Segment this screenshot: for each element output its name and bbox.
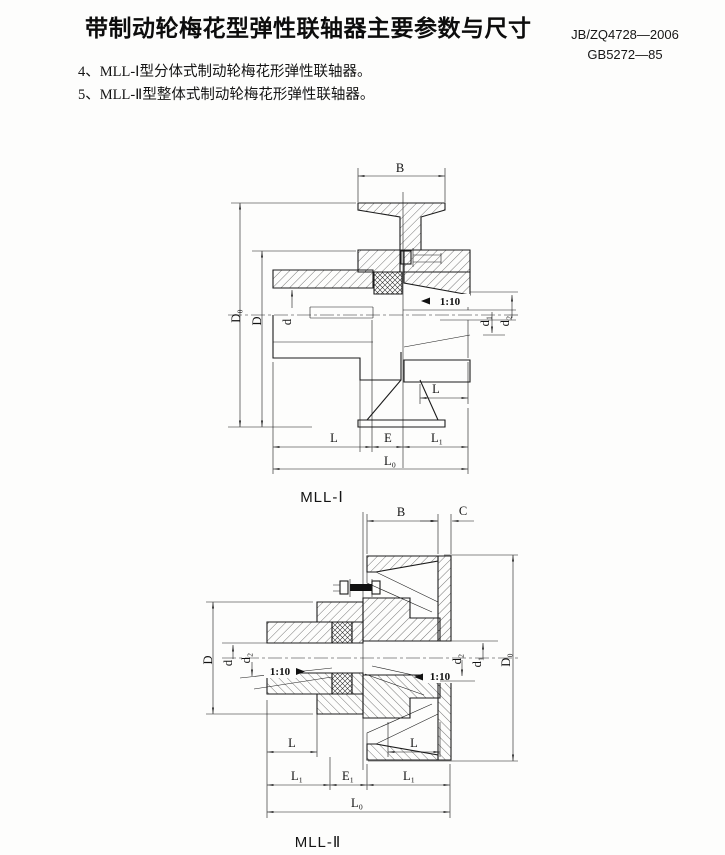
taper-annotation-fig1: 1:10 — [421, 294, 470, 308]
section-top-half-fig1 — [273, 203, 518, 358]
standard-codes: JB/ZQ4728—2006 GB5272—85 — [560, 25, 690, 64]
dim-label-d0: D₀ — [499, 653, 513, 666]
flange-bolt-fig2 — [333, 579, 380, 597]
bolt-shank — [350, 584, 372, 591]
figure1-drawing-mll1: B D₀ D d 1:10 d₁ d₂ L — [215, 160, 525, 510]
dim-label-e1: E₁ — [342, 769, 354, 783]
dim-label-l1-right: L₁ — [403, 769, 415, 783]
elastomer-spider-section — [332, 622, 352, 643]
section-top-half-fig2 — [267, 556, 451, 643]
keyway-lines — [310, 307, 373, 318]
dim-label-l: L — [330, 431, 338, 445]
left-hub-core-section — [352, 622, 363, 643]
dim-label-l-right: L — [432, 382, 440, 396]
dim-label-d1: d₁ — [470, 657, 484, 668]
figure2-drawing-mll2: B C D₀ D d d₂ 1:10 1:10 — [190, 505, 535, 835]
figure2-caption: MLL-Ⅱ — [268, 833, 368, 851]
brake-wheel-rim-section — [367, 556, 438, 572]
page-title: 带制动轮梅花型弹性联轴器主要参数与尺寸 — [85, 14, 532, 44]
document-page: 带制动轮梅花型弹性联轴器主要参数与尺寸 JB/ZQ4728—2006 GB527… — [0, 0, 725, 855]
taper-arrow-icon — [421, 298, 430, 305]
bolt-nut-left — [340, 581, 348, 594]
standard-code-jb: JB/ZQ4728—2006 — [560, 25, 690, 45]
taper-ratio-label: 1:10 — [440, 296, 461, 308]
dim-label-d0: D₀ — [229, 309, 243, 322]
dim-label-l-right: L — [410, 736, 418, 750]
left-hub-section — [267, 622, 332, 643]
right-hub-section — [363, 598, 440, 641]
dim-label-e: E — [384, 431, 392, 445]
elastomer-spider-section — [374, 272, 402, 294]
dim-label-b: B — [397, 505, 405, 519]
figure1-caption: MLL-Ⅰ — [272, 488, 372, 506]
dim-label-l-left: L — [288, 736, 296, 750]
right-hub-outline — [404, 360, 470, 382]
right-hub-taper-section — [404, 272, 470, 295]
dim-label-b: B — [396, 161, 404, 175]
dim-label-d: D — [250, 316, 264, 325]
left-hub-flange-section — [358, 250, 400, 272]
bolt-nut-right — [372, 581, 380, 594]
dim-label-l0: L₀ — [384, 454, 396, 468]
dim-label-d2-left: d₂ — [239, 653, 253, 664]
dim-label-d-bore: d — [280, 318, 294, 325]
taper-ratio-label-left: 1:10 — [270, 666, 291, 678]
brake-wheel-section — [358, 203, 445, 250]
notes-list: 4、MLL-Ⅰ型分体式制动轮梅花形弹性联轴器。 5、MLL-Ⅱ型整体式制动轮梅花… — [78, 61, 374, 106]
dim-label-c: C — [459, 505, 467, 518]
dim-label-d1: d₁ — [478, 316, 492, 327]
right-hub-flange-section — [404, 250, 470, 272]
dim-label-l0: L₀ — [351, 796, 363, 810]
left-hub-section — [273, 270, 373, 288]
dim-label-d2-right: d₂ — [450, 654, 464, 665]
note-item-5: 5、MLL-Ⅱ型整体式制动轮梅花形弹性联轴器。 — [78, 84, 374, 107]
dim-label-d-bore: d — [221, 659, 235, 666]
note-item-4: 4、MLL-Ⅰ型分体式制动轮梅花形弹性联轴器。 — [78, 61, 374, 84]
dim-label-l1: L₁ — [431, 431, 443, 445]
dim-label-l1-left: L₁ — [291, 769, 303, 783]
left-flange-section — [317, 602, 363, 622]
dim-label-d2: d₂ — [498, 316, 512, 327]
standard-code-gb: GB5272—85 — [560, 45, 690, 65]
dimensions-fig2: B C D₀ D d d₂ 1:10 1:10 — [201, 505, 518, 818]
dim-label-d: D — [201, 655, 215, 664]
